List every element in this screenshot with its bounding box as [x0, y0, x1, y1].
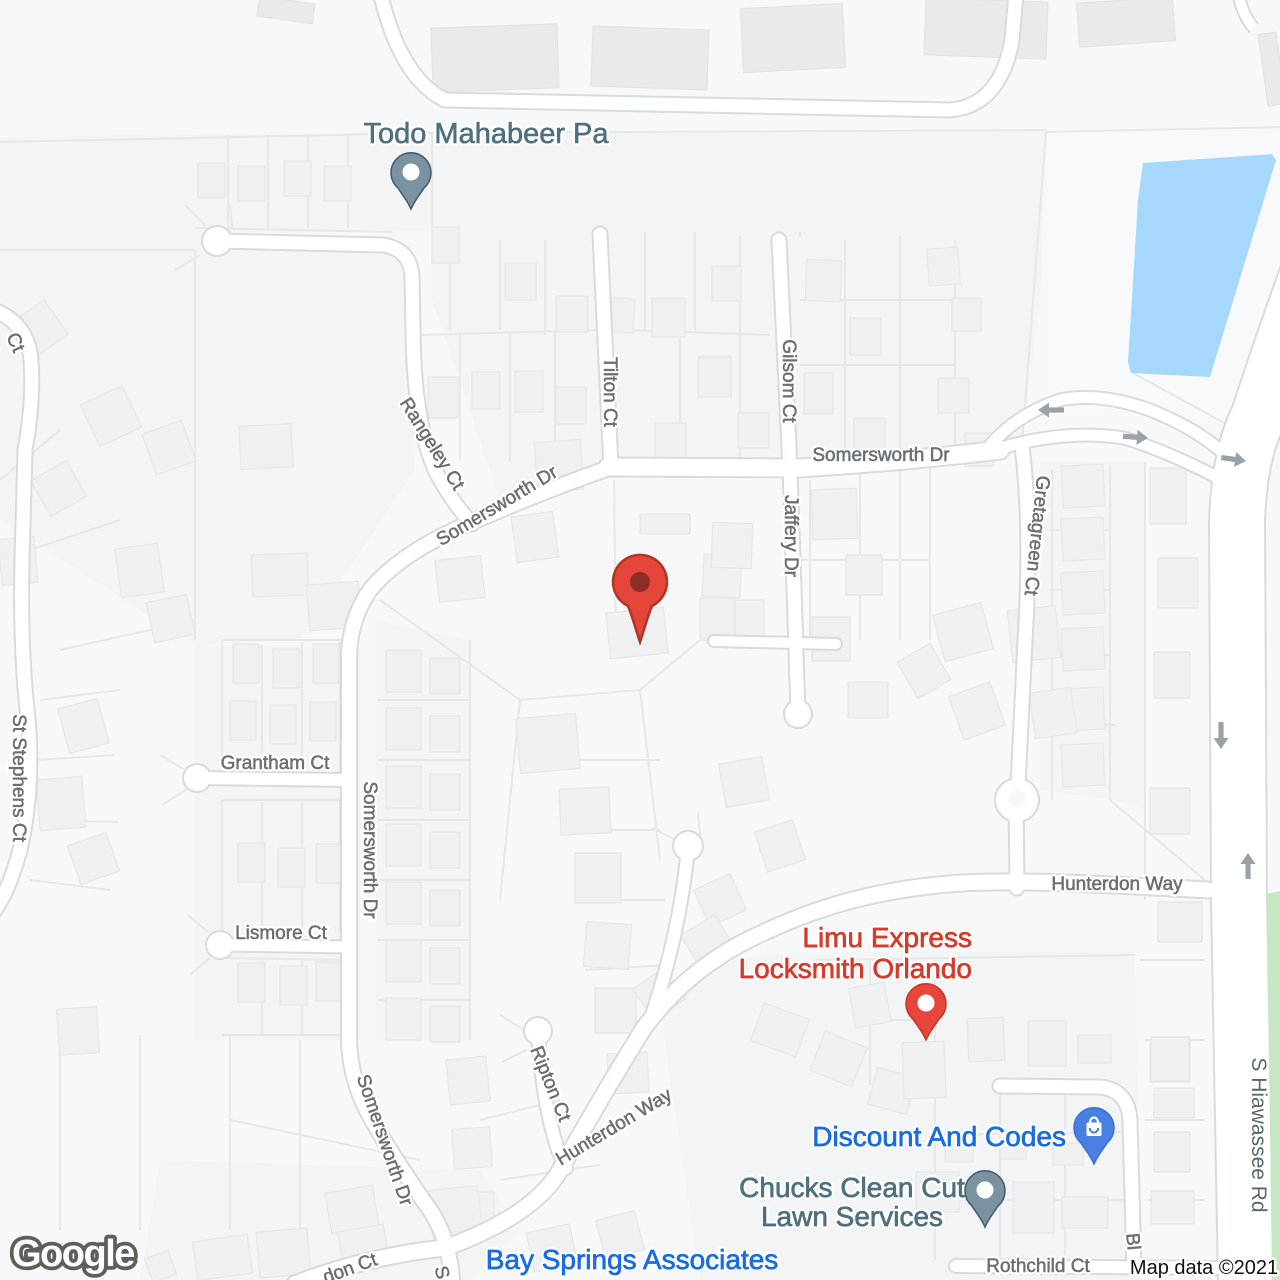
svg-text:Discount And Codes: Discount And Codes [812, 1121, 1066, 1152]
svg-text:Lismore Ct: Lismore Ct [235, 923, 328, 944]
svg-text:Tilton Ct: Tilton Ct [599, 357, 620, 428]
svg-text:Rothchild Ct: Rothchild Ct [986, 1256, 1090, 1277]
svg-text:S Hiawassee Rd: S Hiawassee Rd [1247, 1057, 1270, 1212]
svg-text:Chucks Clean Cut: Chucks Clean Cut [739, 1172, 965, 1203]
svg-text:St Stephens Ct: St Stephens Ct [8, 714, 29, 843]
svg-text:Grantham Ct: Grantham Ct [221, 753, 330, 774]
svg-text:Jaffery Dr: Jaffery Dr [780, 495, 801, 578]
svg-text:Gilsom Ct: Gilsom Ct [778, 339, 799, 423]
svg-text:Limu Express: Limu Express [802, 922, 972, 953]
svg-text:Google: Google [12, 1233, 134, 1275]
svg-text:Bl: Bl [1121, 1232, 1143, 1251]
svg-text:Lawn Services: Lawn Services [761, 1201, 943, 1232]
svg-text:Somersworth Dr: Somersworth Dr [359, 781, 380, 919]
svg-text:Bay Springs Associates: Bay Springs Associates [486, 1244, 779, 1275]
svg-text:Map data ©2021: Map data ©2021 [1130, 1257, 1278, 1279]
svg-text:Hunterdon Way: Hunterdon Way [1051, 874, 1183, 895]
svg-text:Todo Mahabeer Pa: Todo Mahabeer Pa [363, 118, 609, 150]
svg-text:Somersworth Dr: Somersworth Dr [812, 445, 950, 466]
svg-text:Locksmith Orlando: Locksmith Orlando [739, 953, 972, 984]
